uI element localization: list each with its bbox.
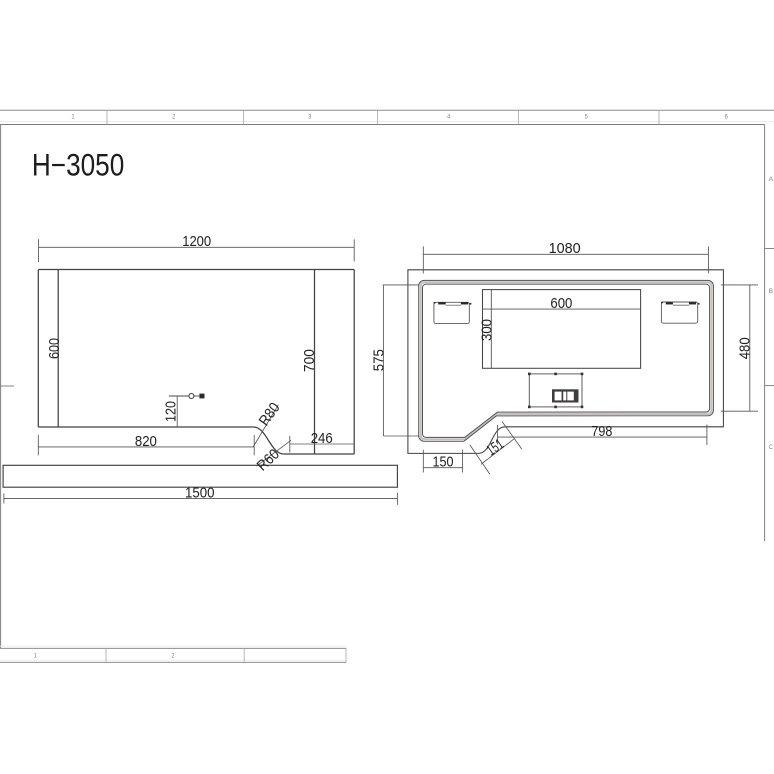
svg-text:300: 300 [478, 319, 495, 341]
svg-text:1080: 1080 [549, 240, 581, 257]
svg-text:B: B [769, 288, 773, 295]
svg-text:1500: 1500 [185, 485, 215, 502]
svg-text:820: 820 [135, 433, 157, 450]
svg-text:1200: 1200 [182, 233, 211, 250]
svg-text:120: 120 [162, 401, 179, 422]
svg-text:C: C [769, 444, 774, 451]
svg-text:2: 2 [172, 114, 176, 121]
svg-text:6: 6 [725, 114, 729, 121]
svg-text:600: 600 [46, 338, 63, 359]
svg-text:1: 1 [34, 653, 38, 660]
svg-text:700: 700 [301, 349, 318, 372]
svg-text:150: 150 [433, 454, 454, 471]
svg-text:A: A [769, 176, 774, 183]
svg-text:246: 246 [311, 430, 333, 447]
svg-text:2: 2 [171, 653, 175, 660]
svg-text:5: 5 [585, 114, 589, 121]
svg-text:1: 1 [71, 114, 75, 121]
svg-text:4: 4 [447, 114, 451, 121]
svg-text:480: 480 [737, 337, 754, 359]
svg-text:600: 600 [550, 295, 572, 312]
svg-text:575: 575 [370, 349, 387, 371]
svg-text:798: 798 [591, 423, 612, 440]
svg-text:H−3050: H−3050 [32, 147, 124, 183]
svg-text:3: 3 [308, 114, 312, 121]
